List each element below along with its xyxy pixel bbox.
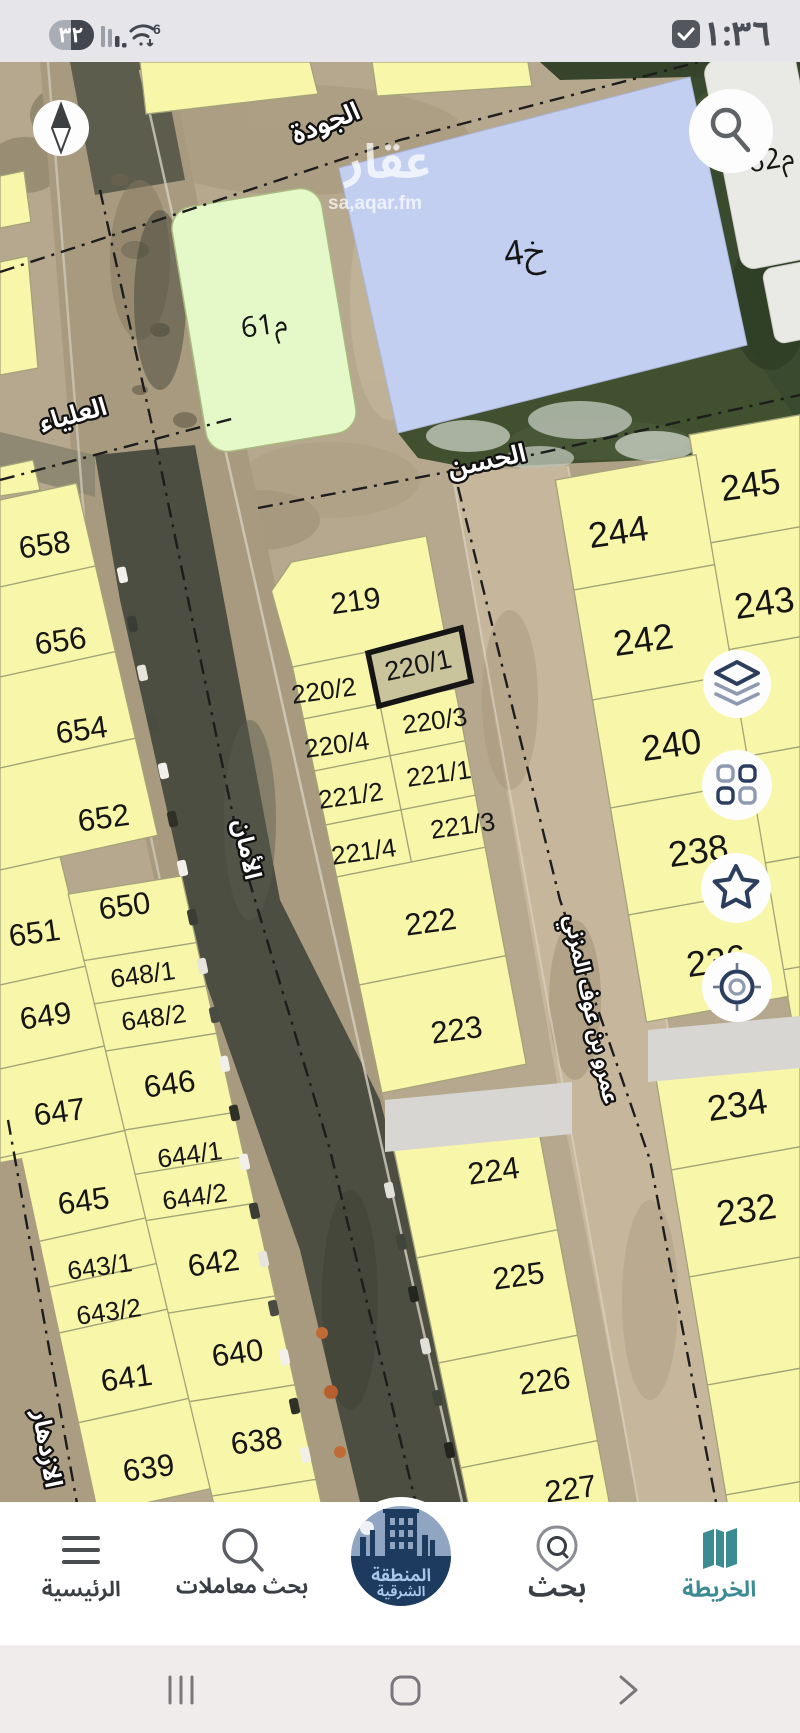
svg-text:641: 641	[98, 1357, 154, 1399]
svg-text:651: 651	[6, 912, 62, 954]
svg-text:647: 647	[31, 1091, 87, 1133]
svg-text:6: 6	[153, 21, 161, 37]
svg-text:639: 639	[120, 1447, 176, 1489]
svg-text:650: 650	[96, 885, 152, 927]
svg-text:232: 232	[714, 1185, 779, 1234]
svg-text:645: 645	[55, 1180, 111, 1222]
svg-text:223: 223	[428, 1009, 484, 1051]
svg-text:646: 646	[141, 1063, 197, 1105]
svg-text:649: 649	[17, 995, 73, 1037]
svg-text:243: 243	[732, 578, 797, 627]
svg-text:242: 242	[611, 615, 676, 664]
svg-text:652: 652	[75, 797, 131, 839]
svg-text:224: 224	[465, 1150, 521, 1192]
svg-text:642: 642	[185, 1242, 241, 1284]
svg-text:sa,aqar.fm: sa,aqar.fm	[328, 193, 422, 214]
svg-text:219: 219	[329, 582, 383, 622]
svg-text:640: 640	[209, 1332, 265, 1374]
svg-text:225: 225	[490, 1255, 546, 1297]
svg-text:234: 234	[705, 1080, 770, 1129]
svg-text:240: 240	[639, 720, 704, 769]
svg-text:638: 638	[228, 1420, 284, 1462]
svg-text:222: 222	[402, 901, 458, 943]
svg-text:244: 244	[586, 507, 651, 556]
svg-text:658: 658	[16, 524, 72, 566]
svg-text:656: 656	[32, 620, 88, 662]
svg-text:654: 654	[53, 709, 109, 751]
svg-text:245: 245	[718, 460, 783, 509]
svg-text:226: 226	[516, 1360, 572, 1402]
